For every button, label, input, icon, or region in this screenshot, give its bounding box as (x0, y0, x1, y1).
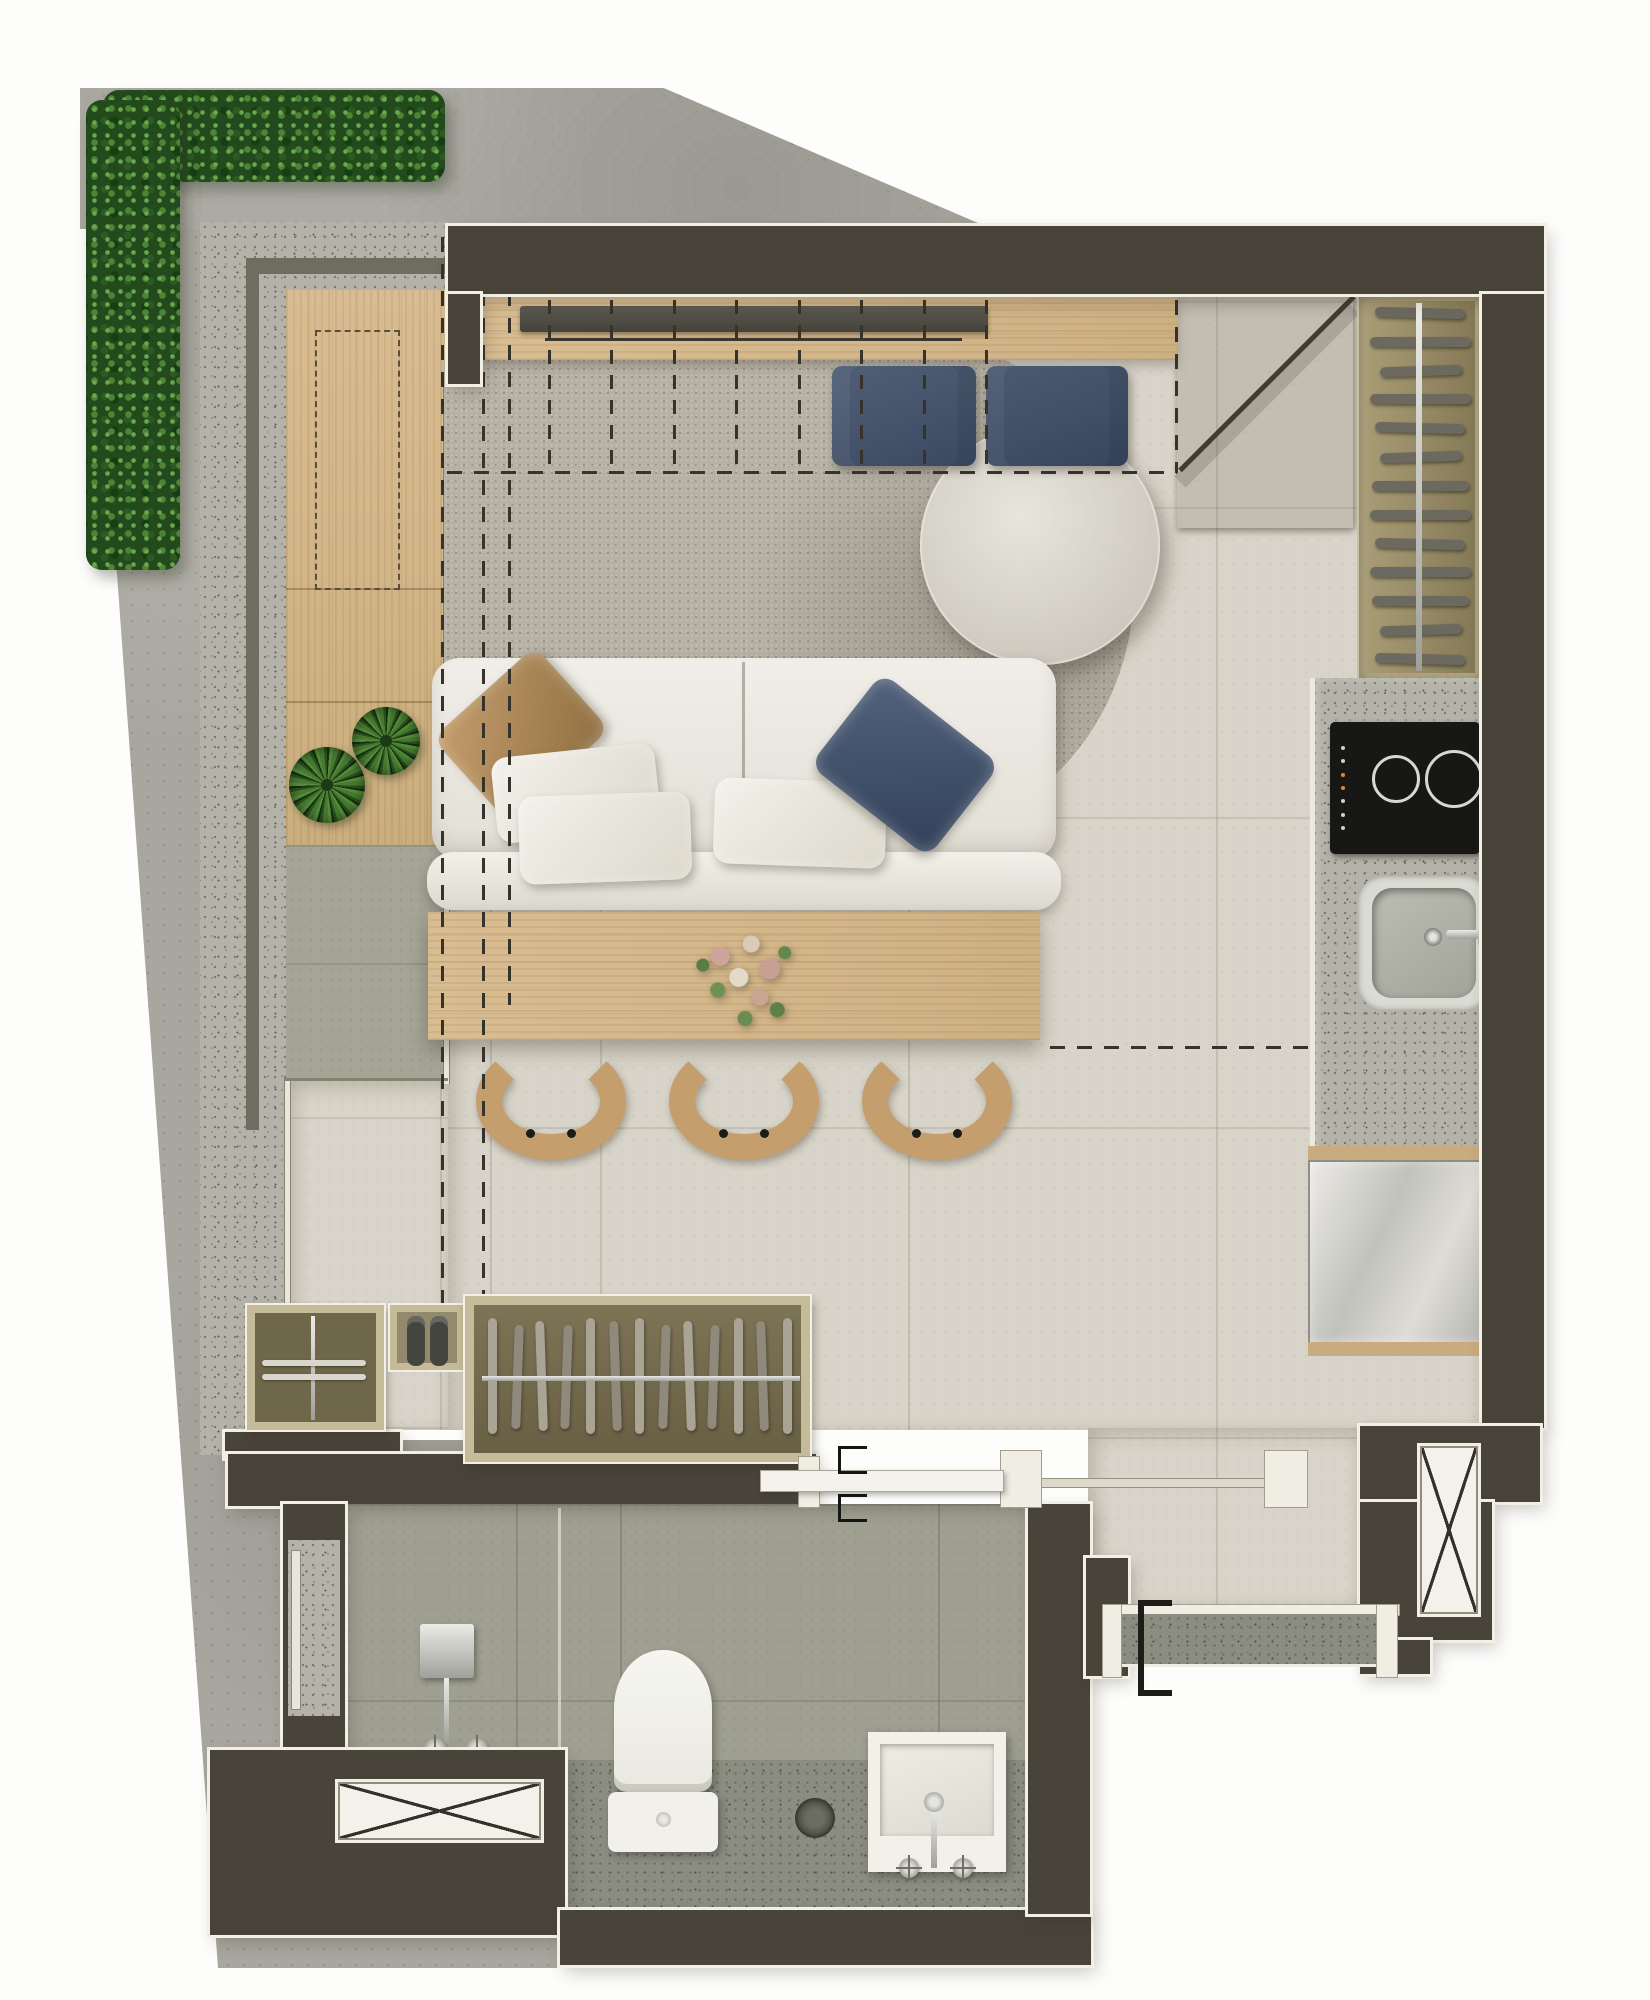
glass-joint (284, 1078, 448, 1081)
flower-bouquet (683, 913, 807, 1037)
rail-hanger (262, 1360, 366, 1366)
chair (862, 1042, 1012, 1160)
basin-handle (899, 1858, 919, 1878)
comb-line (985, 300, 988, 473)
deck-seam (286, 701, 448, 703)
cooktop (1330, 722, 1480, 854)
balcony-inset-strip-h (246, 258, 448, 274)
shower-glass-screen (558, 1508, 561, 1754)
comb-line (798, 300, 801, 473)
projection-line-dashed (447, 471, 1177, 474)
ctl-dot (1341, 813, 1345, 817)
kitchen-sink-basin (1372, 888, 1476, 998)
bath-door-leaf (760, 1470, 1004, 1492)
comb-line (548, 300, 551, 473)
closet-small-hangers (262, 1360, 366, 1380)
balcony-floor (286, 845, 448, 1080)
shelf-rack-rail (1416, 303, 1422, 671)
shower-mixer-plate (420, 1624, 474, 1678)
rail-hanger (262, 1374, 366, 1380)
comb-line (860, 300, 863, 473)
toilet-flush-button (656, 1812, 671, 1827)
counter-wood-trim (1308, 1146, 1484, 1160)
floor-plan (0, 0, 1650, 2000)
laundry-ledge (1120, 1614, 1376, 1664)
entry-projection-dashed (1175, 300, 1178, 473)
overhead-projection-dashed (548, 300, 988, 473)
ctl-dot (1341, 786, 1345, 790)
cooktop-burner (1425, 750, 1480, 808)
chair (669, 1042, 819, 1160)
shoe-cabinet (390, 1305, 464, 1370)
sliding-door-track-dashed (508, 237, 511, 1005)
potted-plant (289, 747, 365, 823)
comb-line (735, 300, 738, 473)
sink-drain (1424, 928, 1442, 946)
throw-pillow-white (518, 791, 693, 885)
ctl-dot (1341, 759, 1345, 763)
wall-bath-right (1028, 1504, 1090, 1914)
ledge-jamb (1376, 1604, 1398, 1678)
refrigerator (1308, 1160, 1488, 1344)
wall-bath-bottom-right (560, 1910, 1091, 1965)
basin-inner (880, 1744, 994, 1836)
shaft-marker-box (338, 1782, 541, 1840)
floor-cushion (986, 366, 1128, 466)
door-handle (838, 1494, 867, 1522)
wall-bath-bottom-left (210, 1750, 565, 1935)
basin-faucet-knob (924, 1792, 944, 1812)
dining-chairs-row (476, 1042, 1012, 1162)
cooktop-burner (1372, 755, 1420, 803)
wall-right (1482, 294, 1544, 1428)
kitchen-counter-edge (1310, 678, 1315, 1158)
balcony-inset-strip-v (246, 258, 259, 1130)
deck-furniture-marker-dashed (315, 330, 400, 590)
ctl-dot (1341, 773, 1345, 777)
shoe (407, 1316, 425, 1366)
service-shaft-marker (1420, 1446, 1478, 1614)
comb-line (610, 300, 613, 473)
door-handle (838, 1446, 867, 1474)
basin-handle (953, 1858, 973, 1878)
wall-top (448, 226, 1544, 294)
basin-faucet-pipe (931, 1808, 937, 1868)
ledge-faucet-top (1138, 1600, 1172, 1606)
bath-window-glazing (291, 1550, 301, 1710)
ctl-dot (1341, 799, 1345, 803)
toilet-seat (614, 1650, 712, 1792)
ledge-faucet-bottom (1138, 1690, 1172, 1696)
ctl-dot (1341, 826, 1345, 830)
refrigerator-wood-trim (1308, 1342, 1484, 1356)
door-jamb (1000, 1450, 1042, 1508)
wall-corner-left (448, 294, 480, 384)
potted-plant (352, 707, 420, 775)
hedge-left (86, 100, 180, 570)
ledge-faucet-v (1138, 1600, 1144, 1696)
shoe (430, 1316, 448, 1366)
ledge-jamb (1102, 1604, 1122, 1678)
floor-drain (795, 1798, 835, 1838)
wardrobe-rail (482, 1376, 800, 1381)
sliding-door-track-dashed (441, 237, 444, 1315)
cooktop-controls (1340, 746, 1346, 830)
comb-line (673, 300, 676, 473)
balcony-granite-band (200, 222, 286, 1455)
ctl-dot (1341, 746, 1345, 750)
corridor-floor (1088, 1428, 1362, 1606)
shower-riser-pipe (444, 1678, 449, 1744)
comb-line (923, 300, 926, 473)
door-jamb (1264, 1450, 1308, 1508)
sliding-door-track-dashed (482, 237, 485, 1315)
chair (476, 1042, 626, 1160)
